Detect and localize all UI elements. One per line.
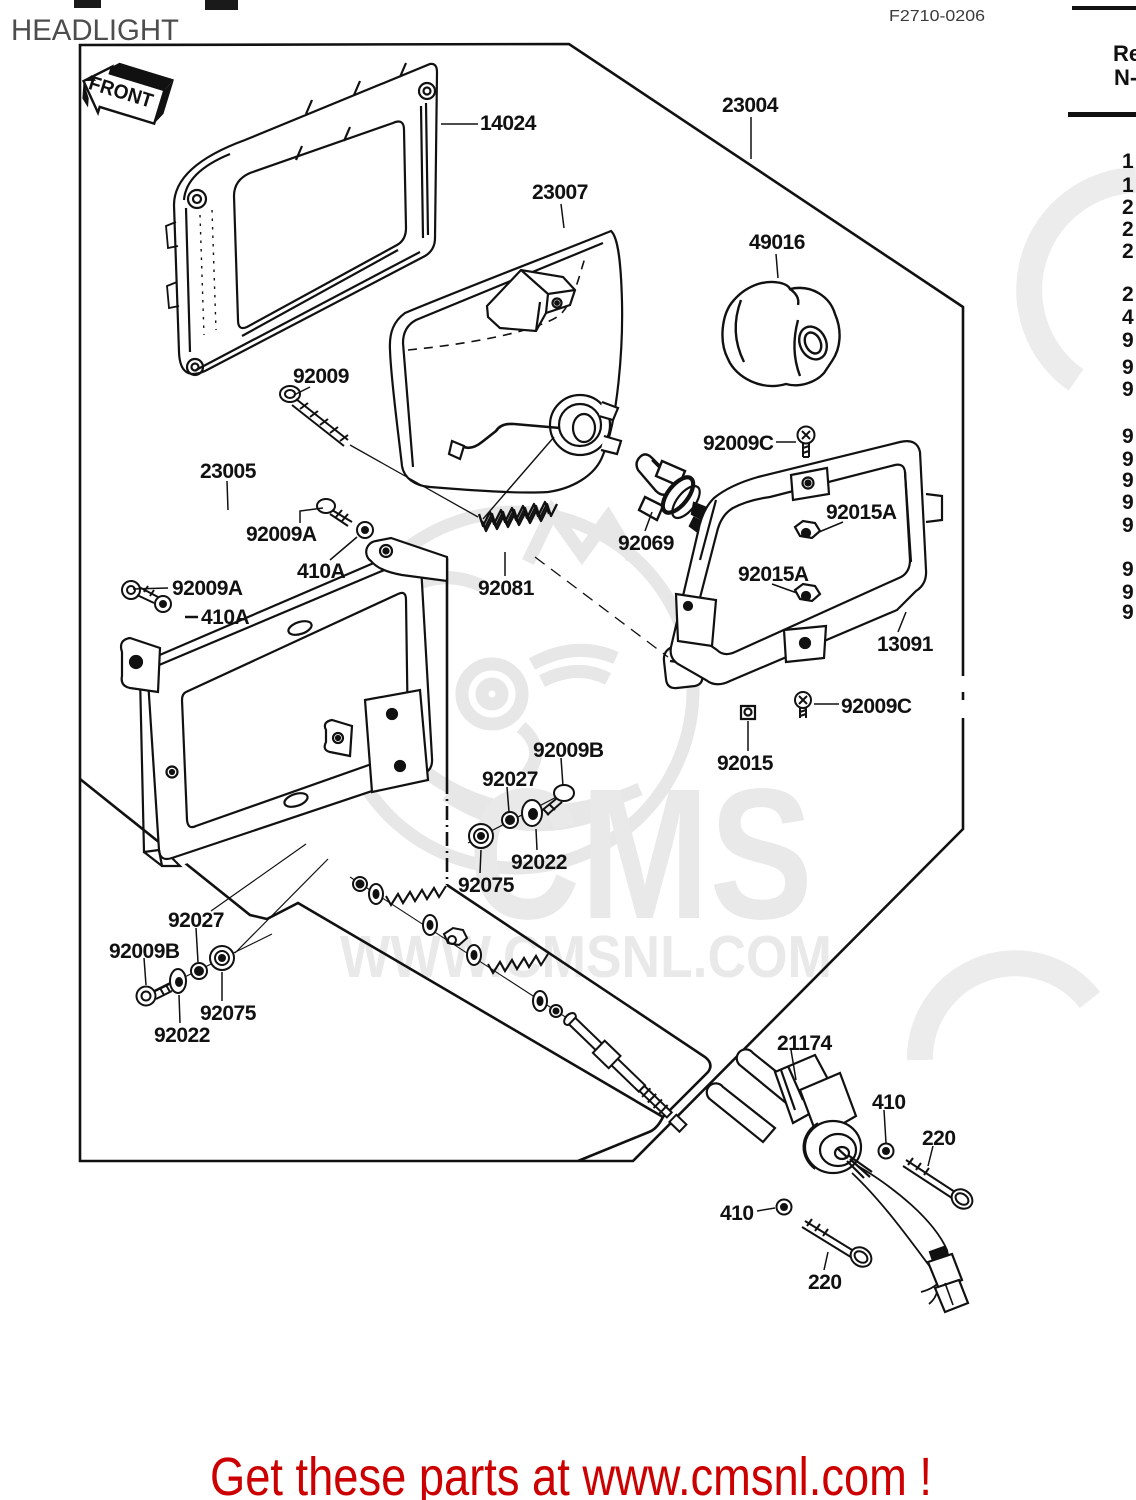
svg-text:9: 9 xyxy=(1122,356,1134,379)
svg-text:9: 9 xyxy=(1122,469,1134,492)
svg-text:WWW.CMSNL.COM: WWW.CMSNL.COM xyxy=(340,924,832,990)
svg-text:Get these parts at www.cmsnl.c: Get these parts at www.cmsnl.com ! xyxy=(210,1447,932,1500)
svg-text:92022: 92022 xyxy=(154,1024,210,1047)
svg-text:2: 2 xyxy=(1122,283,1134,306)
svg-text:410: 410 xyxy=(720,1202,754,1225)
svg-text:N-: N- xyxy=(1114,65,1136,90)
svg-text:92009A: 92009A xyxy=(246,523,317,546)
svg-text:23005: 23005 xyxy=(200,460,257,483)
svg-text:9: 9 xyxy=(1122,425,1134,448)
svg-text:23007: 23007 xyxy=(532,181,588,204)
svg-text:92075: 92075 xyxy=(200,1002,257,1025)
svg-text:13091: 13091 xyxy=(877,633,934,656)
svg-text:92009C: 92009C xyxy=(703,432,774,455)
svg-text:HEADLIGHT: HEADLIGHT xyxy=(11,14,179,47)
svg-text:92015A: 92015A xyxy=(826,501,897,524)
svg-text:92069: 92069 xyxy=(618,532,674,555)
svg-text:92027: 92027 xyxy=(482,768,538,791)
svg-text:92075: 92075 xyxy=(458,874,515,897)
svg-text:9: 9 xyxy=(1122,558,1134,581)
svg-text:9: 9 xyxy=(1122,601,1134,624)
svg-text:9: 9 xyxy=(1122,491,1134,514)
svg-text:1: 1 xyxy=(1122,174,1134,197)
svg-text:F2710-0206: F2710-0206 xyxy=(889,8,985,25)
svg-text:21174: 21174 xyxy=(777,1032,833,1055)
svg-text:1: 1 xyxy=(1122,150,1134,173)
svg-text:92009A: 92009A xyxy=(172,577,243,600)
svg-text:92009: 92009 xyxy=(293,365,349,388)
svg-text:410: 410 xyxy=(872,1091,906,1114)
svg-text:4: 4 xyxy=(1122,306,1134,329)
svg-text:9: 9 xyxy=(1122,514,1134,537)
svg-text:92015A: 92015A xyxy=(738,563,809,586)
svg-text:92009B: 92009B xyxy=(533,739,604,762)
svg-text:2: 2 xyxy=(1122,240,1134,263)
svg-text:9: 9 xyxy=(1122,448,1134,471)
svg-text:Re: Re xyxy=(1113,41,1136,66)
svg-text:14024: 14024 xyxy=(480,112,537,135)
svg-text:9: 9 xyxy=(1122,329,1134,352)
svg-text:2: 2 xyxy=(1122,196,1134,219)
svg-text:23004: 23004 xyxy=(722,94,779,117)
svg-text:92015: 92015 xyxy=(717,752,774,775)
svg-text:92081: 92081 xyxy=(478,577,535,600)
svg-text:410A: 410A xyxy=(201,606,250,629)
svg-text:220: 220 xyxy=(922,1127,956,1150)
svg-text:9: 9 xyxy=(1122,378,1134,401)
svg-text:2: 2 xyxy=(1122,218,1134,241)
svg-text:49016: 49016 xyxy=(749,231,805,254)
svg-text:220: 220 xyxy=(808,1271,842,1294)
svg-text:410A: 410A xyxy=(297,560,346,583)
svg-text:92009C: 92009C xyxy=(841,695,912,718)
svg-text:92022: 92022 xyxy=(511,851,567,874)
